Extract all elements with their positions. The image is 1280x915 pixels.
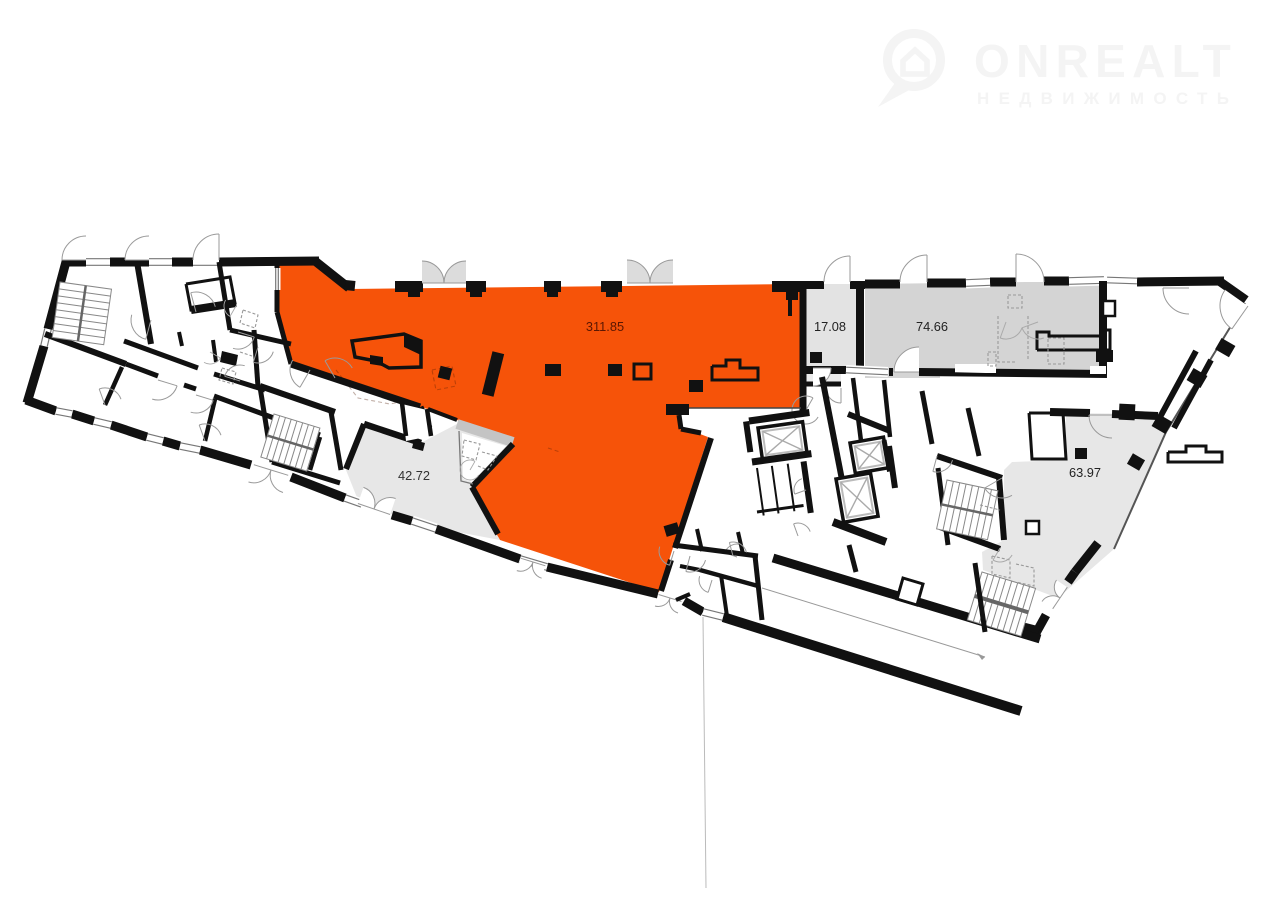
svg-text:НЕДВИЖИМОСТЬ: НЕДВИЖИМОСТЬ (977, 89, 1238, 108)
svg-text:74.66: 74.66 (916, 319, 948, 334)
svg-text:311.85: 311.85 (586, 319, 624, 334)
svg-text:42.72: 42.72 (398, 468, 430, 483)
svg-text:63.97: 63.97 (1069, 465, 1101, 480)
svg-text:ONREALT: ONREALT (974, 35, 1237, 87)
svg-text:17.08: 17.08 (814, 319, 846, 334)
